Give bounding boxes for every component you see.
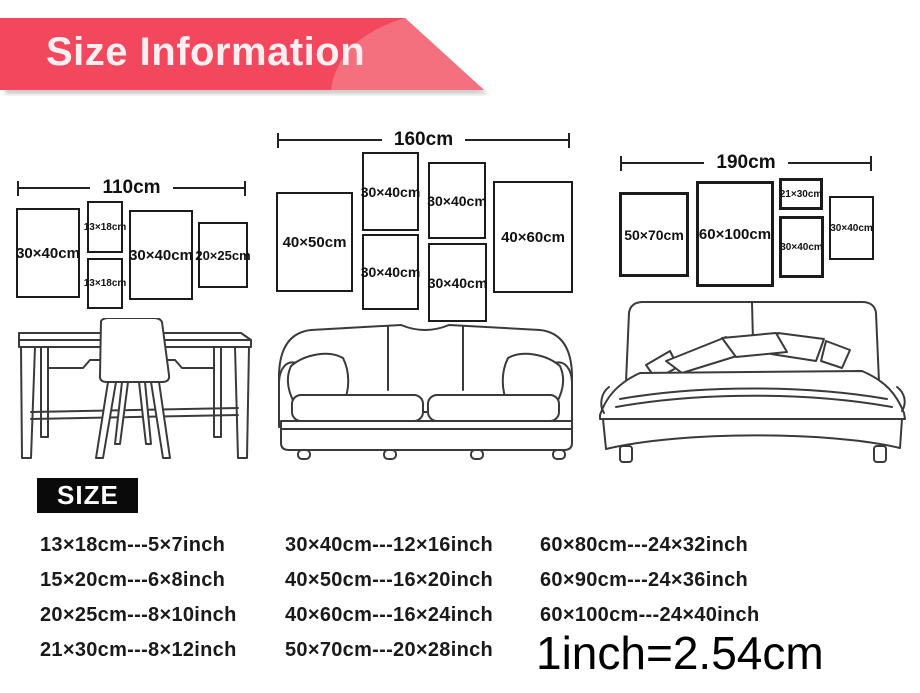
frame-21x30cm: 21×30cm <box>779 178 823 210</box>
frame-30x40cm: 30×40cm <box>428 162 486 239</box>
dimension-label: 160cm <box>382 129 465 151</box>
frame-30x40cm: 30×40cm <box>362 234 419 310</box>
sofa-illustration <box>253 312 598 462</box>
frame-30x40cm: 30×40cm <box>16 208 80 298</box>
tick-icon <box>568 133 570 148</box>
rule <box>19 187 90 189</box>
dimension-label: 110cm <box>90 177 172 199</box>
rule <box>173 187 244 189</box>
conversion-row: 50×70cm---20×28inch <box>285 633 493 668</box>
frame-30x40cm: 30×40cm <box>362 152 419 231</box>
size-heading: SIZE <box>57 480 119 510</box>
double-bed-illustration <box>590 293 915 483</box>
frame-60x100cm: 60×100cm <box>696 181 774 287</box>
tick-icon <box>244 181 246 196</box>
conversion-column-3: 60×80cm---24×32inch 60×90cm---24×36inch … <box>540 528 759 633</box>
desk-with-chair-illustration <box>10 318 255 463</box>
dimension-line-160cm: 160cm <box>277 132 570 148</box>
rule <box>465 139 568 141</box>
frame-20x25cm: 20×25cm <box>198 222 248 288</box>
rule <box>279 139 382 141</box>
frame-40x60cm: 40×60cm <box>493 181 573 293</box>
conversion-row: 60×80cm---24×32inch <box>540 528 759 563</box>
frame-13x18cm: 13×18cm <box>87 201 123 253</box>
banner-title: Size Information <box>46 30 365 75</box>
tick-icon <box>870 156 872 171</box>
frame-50x70cm: 50×70cm <box>619 192 689 277</box>
conversion-row: 40×50cm---16×20inch <box>285 563 493 598</box>
rule <box>622 162 704 164</box>
inch-conversion-note: 1inch=2.54cm <box>536 626 824 680</box>
dimension-line-110cm: 110cm <box>17 180 246 196</box>
conversion-row: 13×18cm---5×7inch <box>40 528 237 563</box>
frame-40x50cm: 40×50cm <box>276 192 353 292</box>
conversion-row: 15×20cm---6×8inch <box>40 563 237 598</box>
frame-30x40cm: 30×40cm <box>129 210 193 300</box>
dimension-line-190cm: 190cm <box>620 155 872 171</box>
conversion-row: 60×90cm---24×36inch <box>540 563 759 598</box>
conversion-row: 20×25cm---8×10inch <box>40 598 237 633</box>
conversion-row: 30×40cm---12×16inch <box>285 528 493 563</box>
frame-30x40cm: 30×40cm <box>829 196 874 260</box>
rule <box>788 162 870 164</box>
conversion-row: 40×60cm---16×24inch <box>285 598 493 633</box>
frame-30x40cm: 30×40cm <box>428 243 487 322</box>
size-information-banner: Size Information <box>0 0 500 110</box>
frame-13x18cm: 13×18cm <box>87 258 123 309</box>
size-heading-badge: SIZE <box>37 478 138 513</box>
conversion-row: 21×30cm---8×12inch <box>40 633 237 668</box>
frame-30x40cm: 30×40cm <box>779 216 824 278</box>
dimension-label: 190cm <box>704 152 787 174</box>
conversion-column-1: 13×18cm---5×7inch 15×20cm---6×8inch 20×2… <box>40 528 237 668</box>
conversion-column-2: 30×40cm---12×16inch 40×50cm---16×20inch … <box>285 528 493 668</box>
